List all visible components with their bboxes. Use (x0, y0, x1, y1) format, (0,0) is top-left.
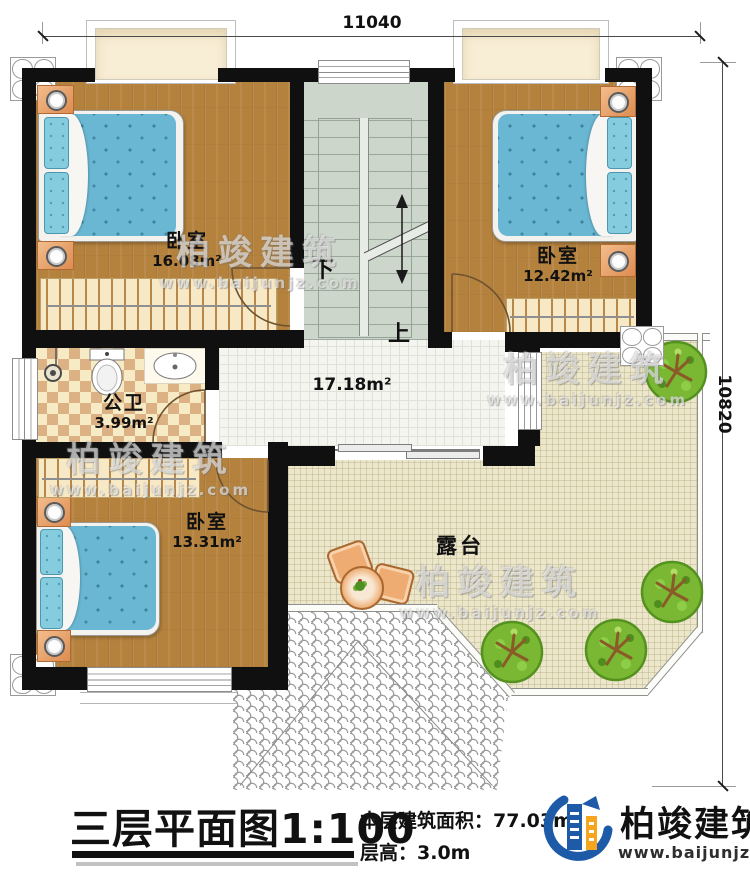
room-label: 公卫 3.99m² (54, 393, 194, 432)
floor-area-label: 本层建筑面积： (360, 810, 493, 832)
pillow (44, 117, 69, 169)
stairs-up-label: 上 (382, 322, 416, 347)
room-area: 16.08m² (117, 253, 257, 270)
wall (518, 428, 540, 446)
floor-plan-canvas: 下 上 卧室 16.08m² 卧室 12.42m² 卧室 13.31m² (0, 0, 750, 873)
room-name: 公卫 (54, 393, 194, 415)
stair-direction-arrow (390, 194, 414, 284)
wall (505, 332, 540, 352)
sink-icon (144, 348, 206, 384)
room-area: 13.31m² (137, 534, 277, 551)
wall (218, 68, 318, 82)
sliding-door-panel (338, 444, 412, 452)
floor-height-line: 层高：3.0m (360, 838, 470, 865)
hall-area-label: 17.18m² (282, 376, 422, 396)
wardrobe (38, 458, 200, 498)
bedroom-window (87, 667, 232, 692)
room-name: 卧室 (117, 231, 257, 253)
sliding-door-panel (406, 451, 480, 459)
pillow (44, 172, 69, 234)
room-name: 卧室 (488, 246, 628, 268)
wall (428, 82, 444, 348)
pillow (607, 172, 632, 234)
toilet-icon (86, 348, 128, 396)
wall (268, 442, 288, 690)
room-area: 3.99m² (54, 415, 194, 432)
floor-height-value: 3.0m (417, 842, 470, 864)
terrace-label: 露台 (400, 534, 520, 558)
brand-name: 柏竣建筑 (620, 796, 750, 847)
wall (22, 68, 36, 358)
floor-height-label: 层高： (360, 842, 417, 864)
wall (22, 442, 222, 458)
nightstand (37, 496, 71, 527)
wall (22, 667, 87, 690)
wall (408, 68, 455, 82)
stairs-down-label: 下 (306, 258, 340, 283)
wall (22, 330, 304, 348)
title-underline (72, 851, 354, 858)
title-underline-shadow (76, 862, 358, 866)
dimension-width-value: 11040 (332, 13, 412, 33)
room-label: 卧室 12.42m² (488, 246, 628, 285)
nightstand (37, 630, 71, 662)
pillow (607, 117, 632, 169)
nightstand (37, 241, 74, 270)
stair-stringer (359, 118, 369, 336)
room-area: 12.42m² (488, 268, 628, 285)
pillow (40, 577, 63, 629)
terrace-railing-bottom (506, 688, 648, 696)
nightstand (600, 86, 636, 117)
room-name: 卧室 (137, 512, 277, 534)
wardrobe (506, 298, 638, 334)
wall (636, 68, 652, 348)
wardrobe (40, 278, 277, 332)
wall (483, 446, 535, 466)
terrace-steps (518, 352, 542, 430)
room-label: 卧室 16.08m² (117, 231, 257, 270)
wall (205, 348, 219, 390)
brand-website: www.baijunjz.com (618, 843, 750, 862)
window-sill-lines (80, 692, 237, 704)
shower-head-icon (42, 348, 66, 384)
room-label: 卧室 13.31m² (137, 512, 277, 551)
wall (270, 446, 335, 466)
plan-title-text: 三层平面图 (70, 805, 280, 853)
wall (22, 438, 36, 690)
brand-logo-icon (536, 788, 616, 868)
staircase-window (318, 60, 410, 84)
dimension-height-value: 10820 (714, 364, 734, 444)
nightstand (37, 85, 74, 114)
tree-icon (476, 616, 548, 688)
wall (230, 667, 288, 690)
wall (444, 332, 452, 348)
pillow (40, 529, 63, 575)
tree-icon (580, 614, 652, 686)
wall (290, 82, 304, 268)
ac-unit (620, 326, 664, 366)
bathroom-window (12, 358, 38, 440)
plant-icon (355, 581, 365, 591)
